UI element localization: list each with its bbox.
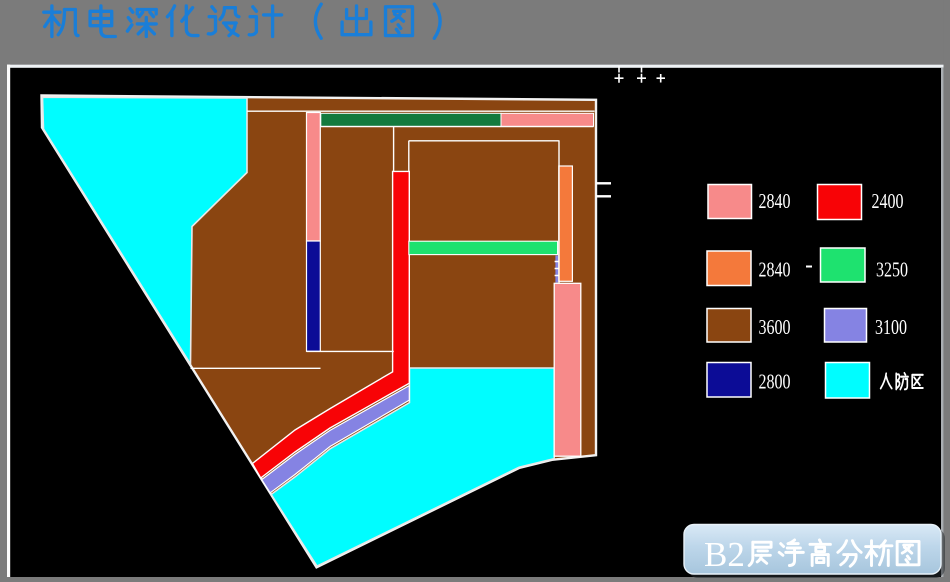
svg-text:3600: 3600 <box>759 315 791 339</box>
svg-text:3250: 3250 <box>876 258 908 282</box>
svg-text:2800: 2800 <box>759 370 791 394</box>
svg-text:B2: B2 <box>704 535 745 574</box>
svg-text:3100: 3100 <box>875 315 907 339</box>
svg-text:2840: 2840 <box>759 258 791 282</box>
svg-text:2400: 2400 <box>872 189 904 213</box>
svg-text:2840: 2840 <box>759 189 791 213</box>
